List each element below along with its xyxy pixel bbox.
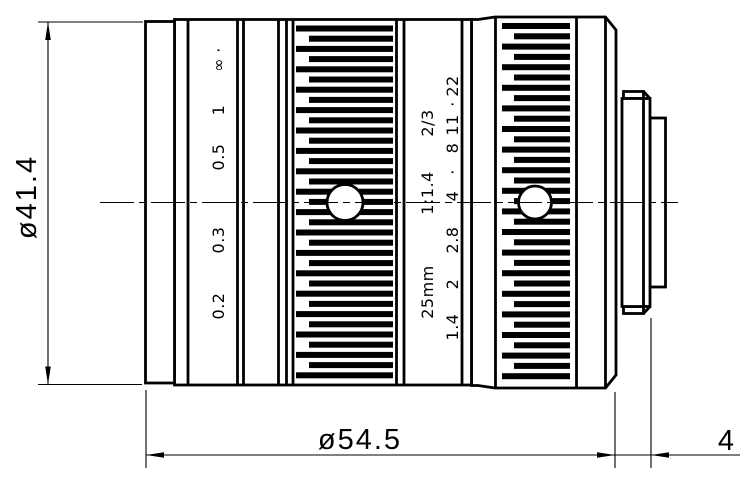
knurl-tooth <box>309 321 393 327</box>
knurl-tooth <box>296 26 393 32</box>
knurl-tooth <box>514 342 570 348</box>
knurl-tooth <box>502 147 570 153</box>
knurl-tooth <box>296 291 393 297</box>
knurl-tooth <box>296 270 393 276</box>
knurl-tooth <box>514 54 570 60</box>
knurl-tooth <box>309 260 393 266</box>
dim-length-label: ø54.5 <box>318 424 402 456</box>
knurl-tooth <box>502 311 570 317</box>
knurl-tooth <box>309 342 393 348</box>
knurl-tooth <box>514 301 570 307</box>
knurl-tooth <box>502 250 570 256</box>
fstop-label: 11 <box>443 114 462 135</box>
focus-scale-label: 1 <box>209 105 228 116</box>
lens-spec-label: 2/3 <box>418 109 437 136</box>
knurl-tooth <box>296 372 393 378</box>
arrowhead-left-flange <box>651 452 669 458</box>
arrowhead-left-front <box>146 452 164 458</box>
knurl-tooth <box>514 281 570 287</box>
lens-spec-label: 25mm <box>418 265 437 319</box>
knurl-tooth <box>296 230 393 236</box>
knurl-tooth <box>514 363 570 369</box>
knurl-tooth <box>502 270 570 276</box>
knurl-tooth <box>296 311 393 317</box>
lens-technical-drawing-page: 0.20.30.51∞· 25mm1:1.42/3 1.422.84·811·2… <box>0 0 752 478</box>
knurl-tooth <box>296 168 393 174</box>
arrowhead-right-rear <box>597 452 615 458</box>
knurl-tooth <box>309 56 393 62</box>
knurl-tooth <box>296 352 393 358</box>
arrowhead-up <box>45 22 51 40</box>
fstop-label: 4 <box>443 191 462 202</box>
knurl-tooth <box>296 250 393 256</box>
dim-height-label: ø41.4 <box>11 155 43 239</box>
knurl-tooth <box>296 128 393 134</box>
knurl-tooth <box>309 281 393 287</box>
knurl-tooth <box>502 332 570 338</box>
fstop-label: 2 <box>443 279 462 290</box>
knurl-tooth <box>296 148 393 154</box>
knurl-tooth <box>296 87 393 93</box>
dim-flange-label: 4 <box>718 425 736 457</box>
lens-spec-label: 1:1.4 <box>418 171 437 215</box>
knurl-tooth <box>502 105 570 111</box>
knurl-tooth <box>309 240 393 246</box>
knurl-tooth <box>309 138 393 144</box>
knurl-tooth <box>514 75 570 81</box>
fstop-label: · <box>443 169 462 175</box>
knurl-tooth <box>502 85 570 91</box>
knurl-tooth <box>309 301 393 307</box>
fstop-label: 22 <box>443 75 462 96</box>
knurl-tooth <box>514 136 570 142</box>
knurl-tooth <box>296 66 393 72</box>
knurl-tooth <box>514 157 570 163</box>
knurl-tooth <box>309 179 393 185</box>
knurl-tooth <box>502 126 570 132</box>
knurl-tooth <box>309 97 393 103</box>
knurl-tooth <box>514 239 570 245</box>
knurl-tooth <box>502 229 570 235</box>
knurl-tooth <box>502 291 570 297</box>
lens-side-view-drawing: 0.20.30.51∞· 25mm1:1.42/3 1.422.84·811·2… <box>0 0 752 478</box>
knurl-tooth <box>502 23 570 29</box>
knurl-tooth <box>309 362 393 368</box>
knurl-tooth <box>309 117 393 123</box>
knurl-tooth <box>309 158 393 164</box>
focus-scale-label: · <box>209 47 228 53</box>
knurl-tooth <box>514 95 570 101</box>
knurl-tooth <box>309 36 393 42</box>
dimension-height: ø41.4 <box>11 22 143 385</box>
knurl-tooth <box>514 116 570 122</box>
fstop-label: 1.4 <box>443 314 462 341</box>
knurl-tooth <box>296 107 393 113</box>
knurl-tooth <box>296 332 393 338</box>
knurl-tooth <box>514 260 570 266</box>
knurl-tooth <box>296 46 393 52</box>
fstop-label: 8 <box>443 143 462 154</box>
knurl-tooth <box>502 373 570 379</box>
knurl-tooth <box>502 167 570 173</box>
focus-scale-label: 0.5 <box>209 144 228 171</box>
arrowhead-down <box>45 367 51 385</box>
fstop-label: · <box>443 101 462 107</box>
knurl-tooth <box>502 353 570 359</box>
fstop-label: 2.8 <box>443 227 462 254</box>
knurl-tooth <box>502 44 570 50</box>
focus-scale-label: 0.2 <box>209 293 228 320</box>
knurl-tooth <box>309 77 393 83</box>
focus-scale-label: 0.3 <box>209 227 228 254</box>
knurl-tooth <box>514 322 570 328</box>
knurl-tooth <box>514 178 570 184</box>
focus-scale-label: ∞ <box>209 58 228 72</box>
knurl-tooth <box>502 64 570 70</box>
knurl-tooth <box>514 219 570 225</box>
knurl-tooth <box>514 33 570 39</box>
